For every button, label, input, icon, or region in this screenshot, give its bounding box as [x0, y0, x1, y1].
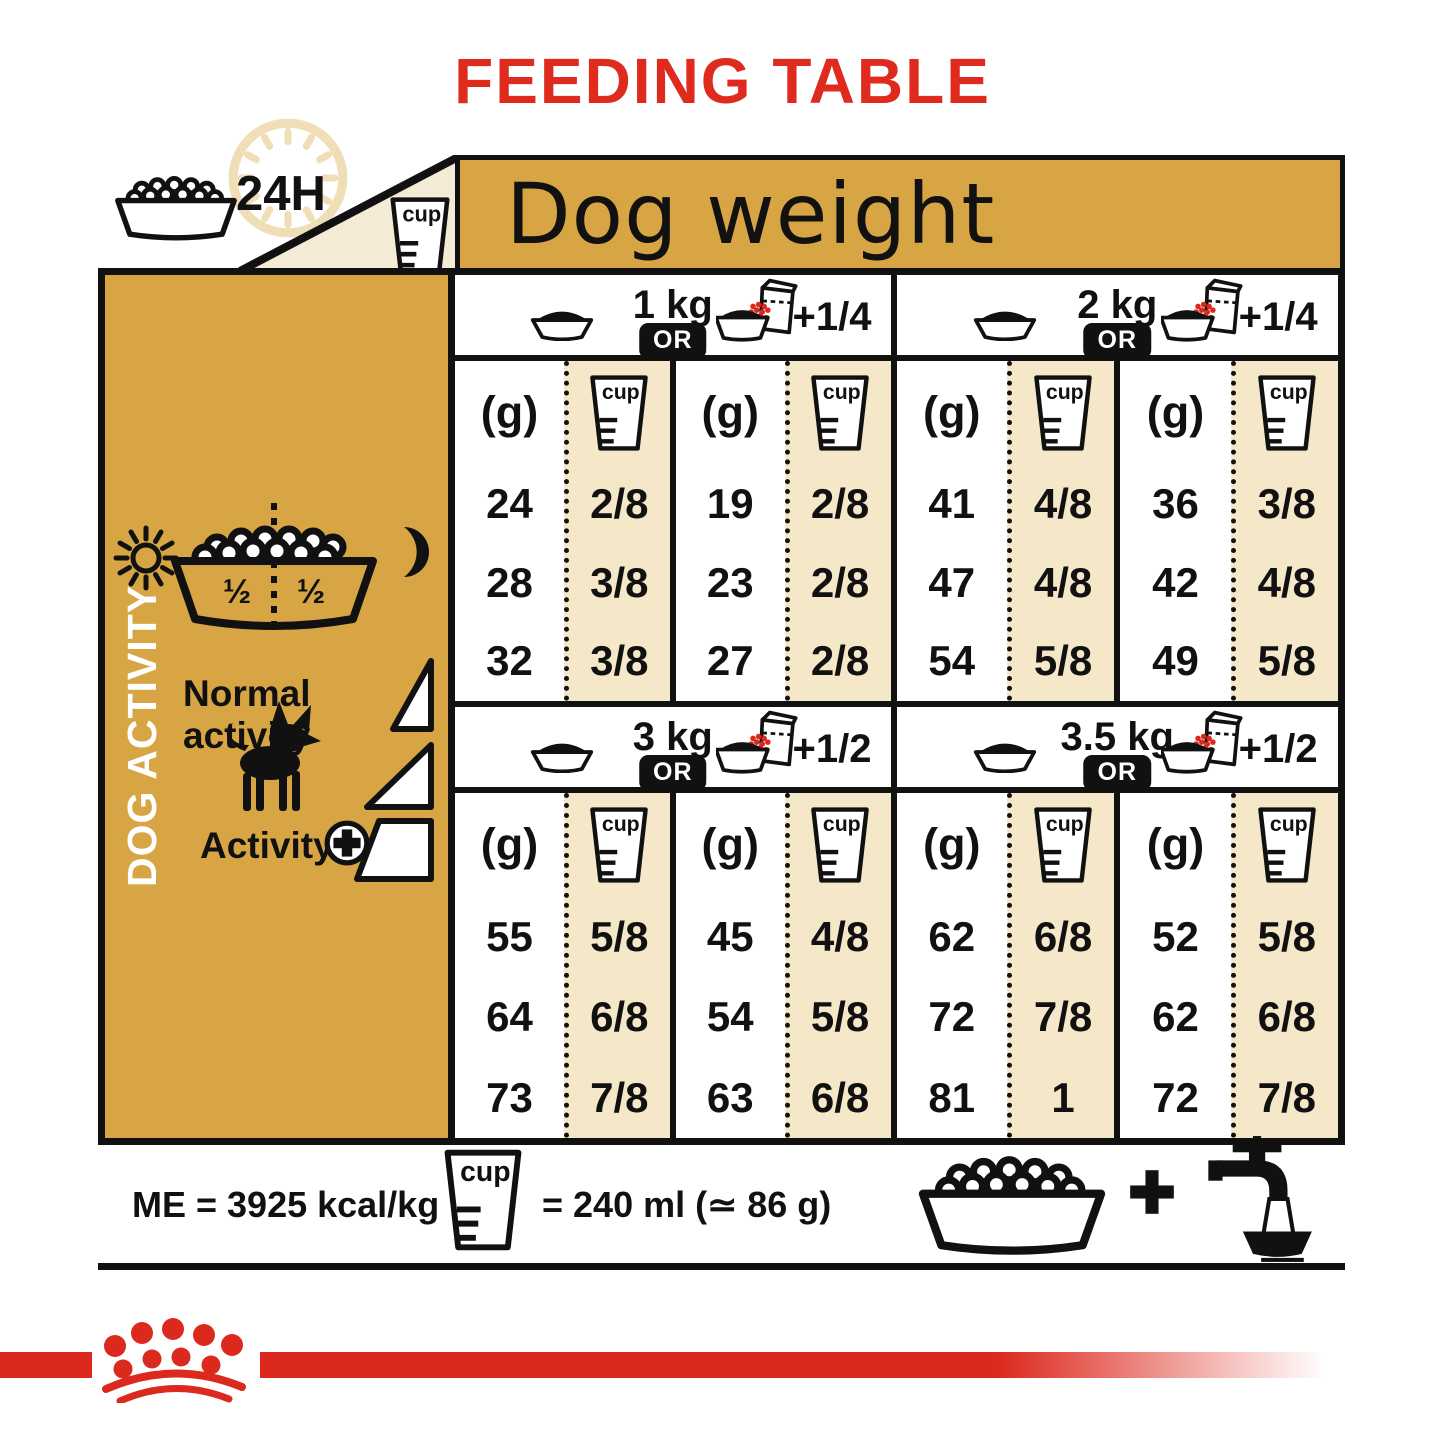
value-cell: 6/8 — [1258, 977, 1316, 1058]
measuring-cup-icon: cup — [809, 374, 871, 452]
cup-column-mixed: cup 5/8 6/8 7/8 — [1231, 793, 1338, 1139]
grams-column: (g) 24 28 32 — [455, 361, 564, 701]
bowl-pouch-icon — [1161, 710, 1249, 778]
value-cell: 4/8 — [1034, 465, 1092, 544]
kibble-bowl-icon — [113, 168, 239, 244]
weight-section-3kg: 3 kg OR — [455, 707, 897, 1139]
dog-weight-label: Dog weight — [460, 165, 995, 263]
value-cell: 47 — [928, 544, 975, 623]
grams-column-mixed: (g) 36 42 49 — [1114, 361, 1230, 701]
svg-text:cup: cup — [1046, 380, 1084, 404]
value-cell: 6/8 — [811, 1058, 869, 1139]
or-badge: OR — [639, 755, 707, 791]
cup-column: cup 4/8 4/8 5/8 — [1007, 361, 1114, 701]
dog-weight-banner: Dog weight — [455, 155, 1345, 273]
cup-header: cup — [1256, 361, 1318, 465]
section-header: 2 kg OR — [897, 275, 1339, 361]
wet-portion-label: +1/2 — [1239, 727, 1318, 772]
weight-section-1kg: 1 kg OR — [455, 275, 897, 707]
grams-header: (g) — [481, 793, 538, 897]
value-cell: 2/8 — [811, 465, 869, 544]
cup-column: cup 2/8 3/8 3/8 — [564, 361, 670, 701]
grams-header: (g) — [701, 361, 758, 465]
dog-activity-sidebar: ½ ½ DOG ACTIVITY Normal activity — [105, 275, 455, 1138]
value-cell: 7/8 — [590, 1058, 648, 1139]
value-cell: 72 — [928, 977, 975, 1058]
value-cell: 6/8 — [1034, 897, 1092, 978]
value-cell: 4/8 — [811, 897, 869, 978]
value-cell: 3/8 — [1258, 465, 1316, 544]
grams-header: (g) — [923, 361, 980, 465]
grams-header: (g) — [701, 793, 758, 897]
cup-header: cup — [588, 361, 650, 465]
measuring-cup-icon: cup — [1256, 806, 1318, 884]
grams-column: (g) 41 47 54 — [897, 361, 1007, 701]
grams-column-mixed: (g) 19 23 27 — [670, 361, 785, 701]
value-cell: 1 — [1051, 1058, 1074, 1139]
value-cell: 23 — [707, 544, 754, 623]
svg-text:cup: cup — [823, 811, 861, 835]
value-cell: 42 — [1152, 544, 1199, 623]
grams-column: (g) 55 64 73 — [455, 793, 564, 1139]
cup-header: cup — [588, 793, 650, 897]
cup-column: cup 5/8 6/8 7/8 — [564, 793, 670, 1139]
cup-header: cup — [1256, 793, 1318, 897]
bowl-pouch-icon — [1161, 278, 1249, 346]
bowl-pouch-icon — [716, 710, 804, 778]
section-columns: (g) 24 28 32 cup 2/8 — [455, 361, 891, 701]
grams-header: (g) — [1147, 361, 1204, 465]
cup-column-mixed: cup 4/8 5/8 6/8 — [785, 793, 891, 1139]
dog-activity-label: DOG ACTIVITY — [119, 647, 166, 887]
section-header: 3 kg OR — [455, 707, 891, 793]
measuring-cup-icon: cup — [436, 1148, 530, 1252]
value-cell: 52 — [1152, 897, 1199, 978]
value-cell: 7/8 — [1258, 1058, 1316, 1139]
or-badge: OR — [1084, 323, 1152, 359]
measuring-cup-icon: cup — [1032, 806, 1094, 884]
cup-header: cup — [809, 793, 871, 897]
cup-column: cup 6/8 7/8 1 — [1007, 793, 1114, 1139]
value-cell: 62 — [928, 897, 975, 978]
value-cell: 45 — [707, 897, 754, 978]
value-cell: 28 — [486, 544, 533, 623]
measuring-cup-icon: cup — [588, 806, 650, 884]
value-cell: 81 — [928, 1058, 975, 1139]
cup-column-mixed: cup 2/8 2/8 2/8 — [785, 361, 891, 701]
value-cell: 54 — [928, 622, 975, 701]
value-cell: 36 — [1152, 465, 1199, 544]
value-cell: 4/8 — [1034, 544, 1092, 623]
grams-column-mixed: (g) 45 54 63 — [670, 793, 785, 1139]
value-cell: 5/8 — [590, 897, 648, 978]
svg-text:cup: cup — [602, 811, 640, 835]
value-cell: 72 — [1152, 1058, 1199, 1139]
svg-text:cup: cup — [402, 201, 441, 226]
value-cell: 27 — [707, 622, 754, 701]
svg-text:cup: cup — [602, 380, 640, 404]
chihuahua-dog-icon — [215, 701, 335, 815]
measuring-cup-icon: cup — [809, 806, 871, 884]
cup-column-mixed: cup 3/8 4/8 5/8 — [1231, 361, 1338, 701]
value-cell: 5/8 — [811, 977, 869, 1058]
measuring-cup-icon: cup — [1032, 374, 1094, 452]
grams-header: (g) — [1147, 793, 1204, 897]
brand-stripe-left — [0, 1352, 92, 1378]
value-cell: 7/8 — [1034, 977, 1092, 1058]
footer-divider — [98, 1263, 1345, 1270]
measuring-cup-icon: cup — [588, 374, 650, 452]
royal-canin-crown-logo — [92, 1303, 257, 1403]
value-cell: 4/8 — [1258, 544, 1316, 623]
grams-header: (g) — [481, 361, 538, 465]
wet-portion-label: +1/2 — [793, 727, 872, 772]
page-title: FEEDING TABLE — [0, 44, 1445, 118]
measuring-cup-icon: cup — [1256, 374, 1318, 452]
brand-stripe-right — [260, 1352, 1346, 1378]
cup-header: cup — [1032, 361, 1094, 465]
bowl-pouch-icon — [716, 278, 804, 346]
value-cell: 3/8 — [590, 544, 648, 623]
value-cell: 32 — [486, 622, 533, 701]
wet-portion-label: +1/4 — [793, 295, 872, 340]
svg-text:cup: cup — [823, 380, 861, 404]
moon-icon — [388, 525, 434, 579]
value-cell: 64 — [486, 977, 533, 1058]
svg-text:cup: cup — [460, 1156, 510, 1188]
measuring-cup-icon: cup — [388, 196, 452, 276]
svg-text:½: ½ — [297, 573, 325, 611]
grams-header: (g) — [923, 793, 980, 897]
section-columns: (g) 62 72 81 cup 6/8 — [897, 793, 1339, 1139]
water-tap-icon — [1186, 1136, 1318, 1264]
feeding-table-page: FEEDING TABLE 24H cup Dog weight — [0, 0, 1445, 1445]
svg-text:½: ½ — [223, 573, 251, 611]
plus-icon — [1128, 1168, 1176, 1216]
value-cell: 2/8 — [811, 544, 869, 623]
value-cell: 5/8 — [1034, 622, 1092, 701]
section-header: 1 kg OR — [455, 275, 891, 361]
weight-sections-grid: 1 kg OR — [455, 275, 1338, 1138]
value-cell: 3/8 — [590, 622, 648, 701]
value-cell: 5/8 — [1258, 897, 1316, 978]
value-cell: 2/8 — [590, 465, 648, 544]
value-cell: 55 — [486, 897, 533, 978]
weight-section-3-5kg: 3.5 kg OR — [897, 707, 1339, 1139]
svg-text:cup: cup — [1270, 380, 1308, 404]
activity-level-wedges — [353, 657, 435, 883]
cup-header: cup — [809, 361, 871, 465]
grams-column: (g) 62 72 81 — [897, 793, 1007, 1139]
cup-header: cup — [1032, 793, 1094, 897]
metabolizable-energy-label: ME = 3925 kcal/kg — [132, 1184, 439, 1226]
value-cell: 5/8 — [1258, 622, 1316, 701]
activity-label: Activity — [200, 825, 334, 867]
wet-portion-label: +1/4 — [1239, 295, 1318, 340]
grams-column-mixed: (g) 52 62 72 — [1114, 793, 1230, 1139]
section-columns: (g) 41 47 54 cup 4/8 — [897, 361, 1339, 701]
section-header: 3.5 kg OR — [897, 707, 1339, 793]
feeding-table: ½ ½ DOG ACTIVITY Normal activity — [98, 268, 1345, 1145]
section-columns: (g) 55 64 73 cup 5/8 — [455, 793, 891, 1139]
cup-equivalence-label: = 240 ml (≃ 86 g) — [542, 1184, 831, 1226]
weight-section-2kg: 2 kg OR — [897, 275, 1339, 707]
svg-text:cup: cup — [1046, 811, 1084, 835]
split-bowl-day-night-icon: ½ ½ — [165, 501, 383, 637]
value-cell: 73 — [486, 1058, 533, 1139]
value-cell: 62 — [1152, 977, 1199, 1058]
kibble-bowl-icon — [905, 1146, 1119, 1258]
value-cell: 54 — [707, 977, 754, 1058]
value-cell: 63 — [707, 1058, 754, 1139]
svg-text:cup: cup — [1270, 811, 1308, 835]
value-cell: 2/8 — [811, 622, 869, 701]
value-cell: 41 — [928, 465, 975, 544]
value-cell: 19 — [707, 465, 754, 544]
value-cell: 24 — [486, 465, 533, 544]
value-cell: 6/8 — [590, 977, 648, 1058]
or-badge: OR — [639, 323, 707, 359]
or-badge: OR — [1084, 755, 1152, 791]
value-cell: 49 — [1152, 622, 1199, 701]
